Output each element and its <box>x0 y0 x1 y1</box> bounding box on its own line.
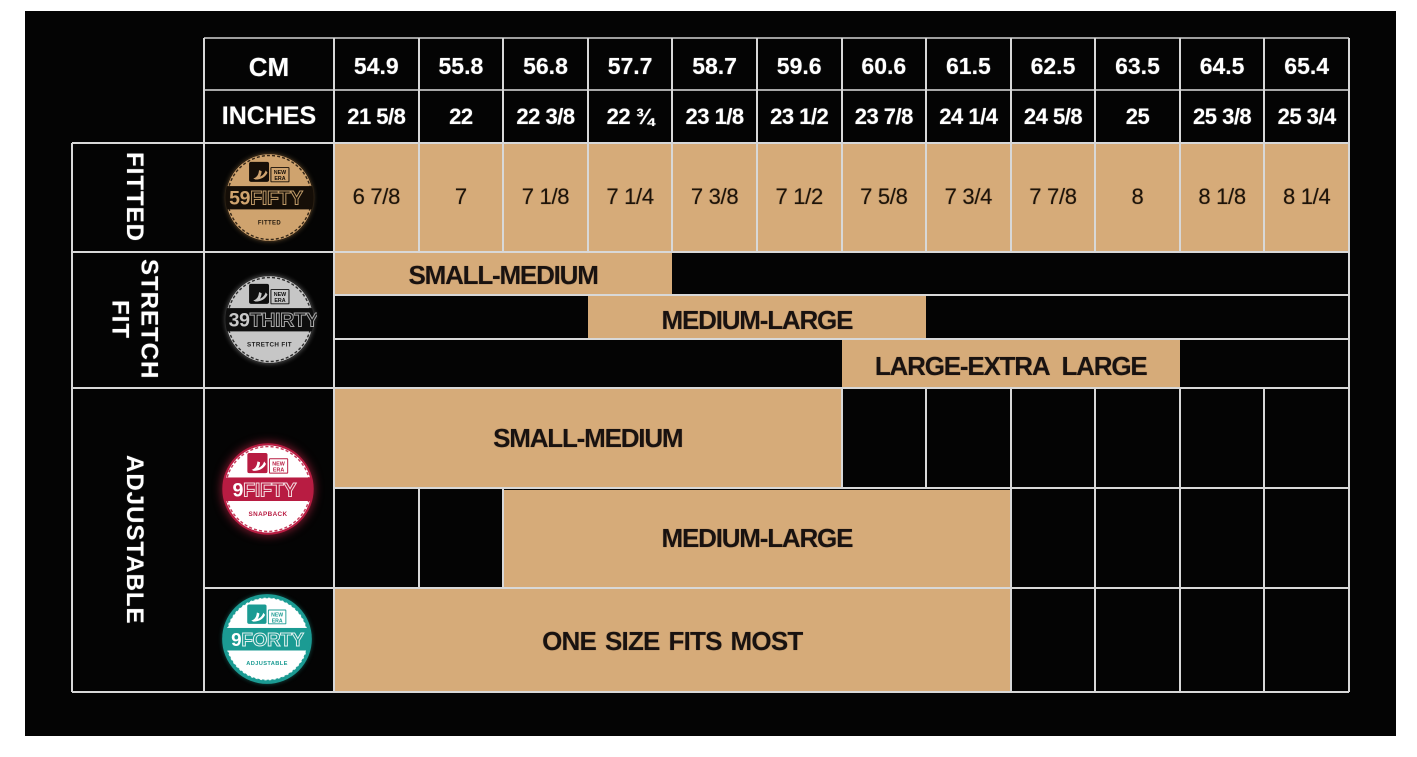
svg-text:59FIFTY: 59FIFTY <box>229 187 303 209</box>
svg-text:SNAPBACK: SNAPBACK <box>249 511 288 518</box>
svg-text:9FORTY: 9FORTY <box>231 629 304 650</box>
svg-text:FITTED: FITTED <box>257 220 280 226</box>
svg-text:39THIRTY: 39THIRTY <box>228 310 316 332</box>
svg-text:ERA: ERA <box>274 176 285 182</box>
svg-text:9FIFTY: 9FIFTY <box>232 479 296 501</box>
svg-text:ADJUSTABLE: ADJUSTABLE <box>246 661 288 667</box>
svg-text:STRETCH FIT: STRETCH FIT <box>247 341 292 348</box>
svg-text:ERA: ERA <box>273 468 284 474</box>
svg-text:ERA: ERA <box>274 298 285 304</box>
svg-text:ERA: ERA <box>272 618 283 624</box>
